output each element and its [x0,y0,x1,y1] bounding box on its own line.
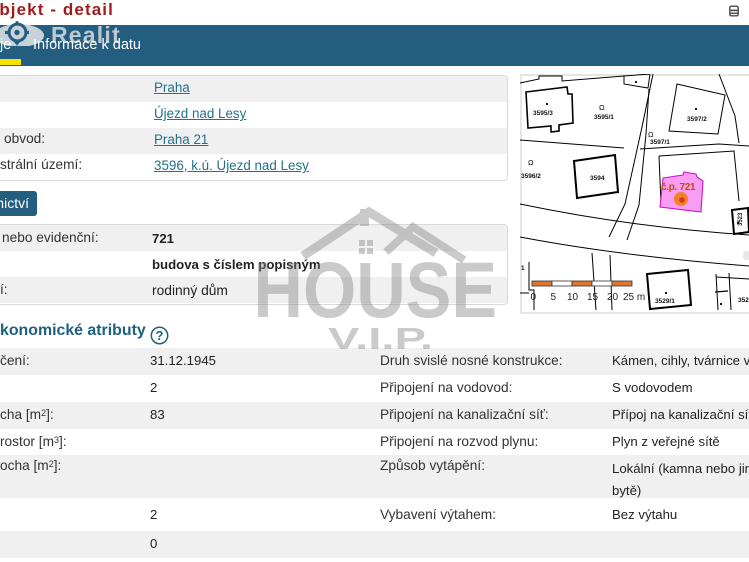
svg-text:3594: 3594 [590,175,605,182]
svg-text:3523: 3523 [738,212,744,226]
svg-text:20: 20 [607,292,619,303]
svg-text:Ω: Ω [599,103,605,112]
svg-text:?: ? [156,328,164,343]
svg-text:5: 5 [551,292,557,303]
svg-text:3529/1: 3529/1 [655,298,675,305]
svg-text:3595/3: 3595/3 [533,110,553,117]
svg-text:3597/2: 3597/2 [687,116,707,123]
svg-text:15: 15 [587,292,599,303]
svg-text:Ω: Ω [528,158,534,167]
svg-text:1: 1 [521,265,525,272]
svg-text:10: 10 [567,292,579,303]
svg-text:3596/2: 3596/2 [521,173,541,180]
svg-text:0: 0 [531,292,537,303]
svg-text:Ω: Ω [648,130,654,139]
svg-text:25 m: 25 m [623,292,645,303]
svg-text:3595/1: 3595/1 [594,114,614,121]
svg-text:352: 352 [738,297,749,304]
svg-text:č.p. 721: č.p. 721 [661,182,696,193]
svg-text:3597/1: 3597/1 [650,139,670,146]
